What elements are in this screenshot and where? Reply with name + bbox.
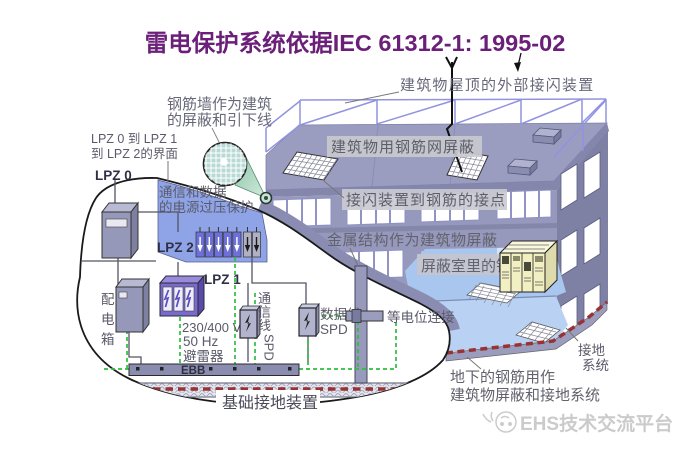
svg-text:SPD: SPD	[262, 334, 277, 361]
svg-text:等电位连接: 等电位连接	[387, 309, 455, 325]
svg-text:50 Hz: 50 Hz	[183, 334, 219, 349]
svg-text:EHS技术交流平台: EHS技术交流平台	[520, 412, 673, 435]
svg-text:接地: 接地	[578, 342, 606, 358]
svg-text:230/400 V: 230/400 V	[182, 320, 242, 335]
svg-text:LPZ 1: LPZ 1	[204, 272, 241, 287]
svg-text:接闪装置到钢筋的接点: 接闪装置到钢筋的接点	[346, 192, 506, 209]
svg-text:SPD: SPD	[320, 322, 348, 337]
svg-text:的屏蔽和引下线: 的屏蔽和引下线	[167, 112, 272, 129]
svg-text:通信线: 通信线	[258, 291, 271, 333]
svg-text:EBB: EBB	[181, 365, 205, 377]
svg-text:LPZ 2: LPZ 2	[157, 240, 194, 255]
svg-text:到 LPZ 2的界面: 到 LPZ 2的界面	[91, 146, 178, 161]
svg-text:LPZ 0: LPZ 0	[95, 168, 132, 183]
svg-text:避雷器: 避雷器	[183, 349, 224, 364]
svg-text:建筑物用钢筋网屏蔽: 建筑物用钢筋网屏蔽	[331, 139, 475, 156]
svg-text:配电箱: 配电箱	[101, 292, 115, 347]
svg-text:地下的钢筋用作: 地下的钢筋用作	[450, 369, 555, 386]
svg-text:LPZ 0 到 LPZ 1: LPZ 0 到 LPZ 1	[91, 132, 177, 146]
svg-text:钢筋墙作为建筑: 钢筋墙作为建筑	[167, 96, 272, 113]
svg-text:建筑物屋顶的外部接闪装置: 建筑物屋顶的外部接闪装置	[400, 77, 594, 94]
svg-text:通信和数据: 通信和数据	[159, 185, 227, 200]
svg-text:系统: 系统	[582, 358, 609, 373]
svg-text:的电源过压保护: 的电源过压保护	[159, 200, 254, 215]
svg-text:建筑物屏蔽和接地系统: 建筑物屏蔽和接地系统	[450, 387, 600, 404]
svg-text:金属结构作为建筑物屏蔽: 金属结构作为建筑物屏蔽	[327, 232, 498, 249]
svg-text:基础接地装置: 基础接地装置	[222, 394, 318, 412]
svg-text:雷电保护系统依据IEC 61312-1: 1995-02: 雷电保护系统依据IEC 61312-1: 1995-02	[145, 29, 566, 56]
